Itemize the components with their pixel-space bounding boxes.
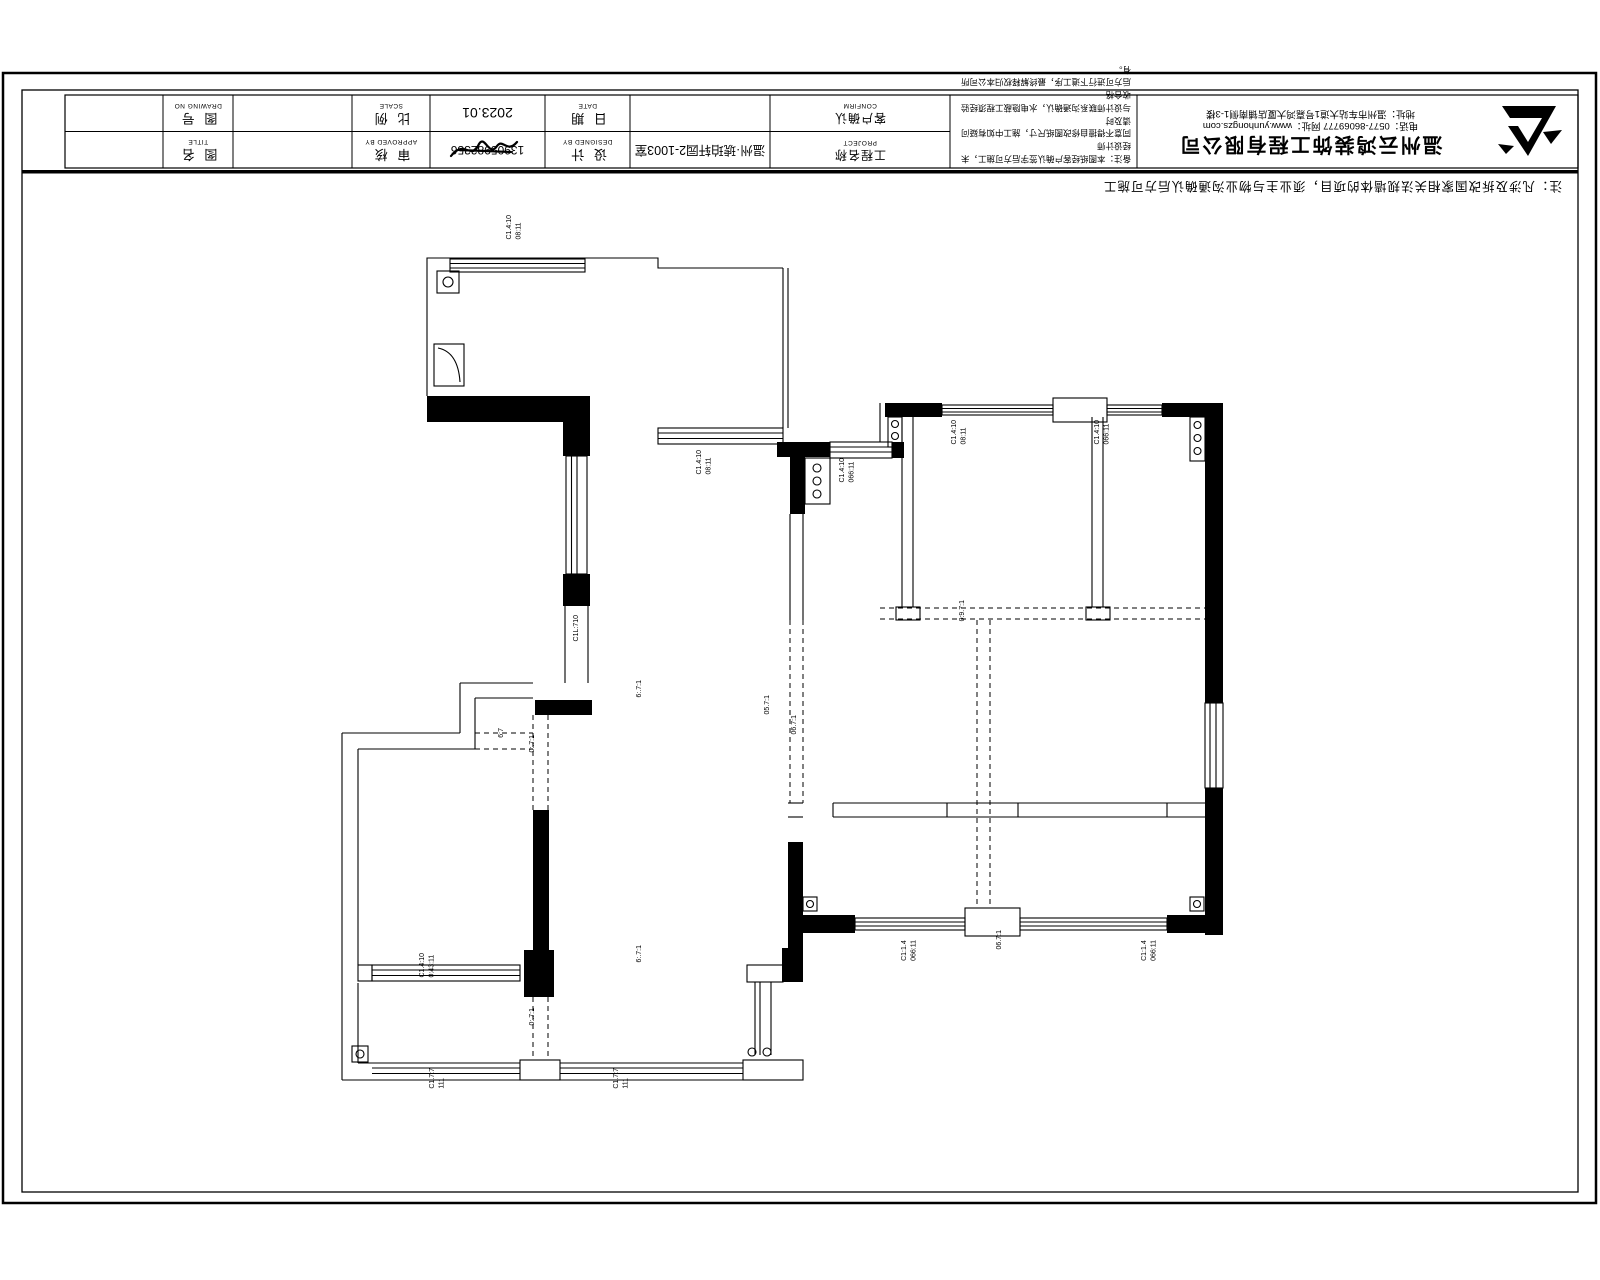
plan-dimension-tag: 06.7:1 (995, 930, 1004, 949)
plan-dimension-tag: C1.7:7 111 (428, 1068, 447, 1089)
scale-zh: 比 例 (372, 110, 411, 125)
date-label: 日 期 DATE (545, 95, 630, 131)
project-label: 工程名称 PROJECT (770, 131, 950, 168)
approved-zh: 审 核 (372, 146, 411, 161)
plan-dimension-tag: C1.4:10 0:43:11 (418, 953, 437, 978)
scale-label: 比 例 SCALE (352, 95, 430, 131)
sheet-frame (3, 73, 1596, 1203)
remarks-line-4: 后方可进行下道工序，最终解释权归本公司所有。 (956, 63, 1131, 89)
plan-dimension-tag: 6:7 (497, 728, 506, 738)
date-value: 2023.01 (462, 105, 513, 121)
drawing-no-label: 图 号 DRAWING NO (163, 95, 233, 131)
drawing-no-zh: 图 号 (179, 110, 218, 125)
company-logo-icon (1486, 103, 1570, 161)
project-value: 温州·琥珀轩园2-1003室 (635, 142, 766, 156)
plan-dimension-tag: 0:.7:1 (528, 735, 537, 753)
plan-dimension-tag: 6:.7:1 (635, 945, 644, 963)
approved-en: APPROVED BY (365, 138, 417, 145)
plan-dimension-tag: C1:1.4 066:11 (1140, 940, 1159, 961)
scale-en: SCALE (379, 101, 403, 108)
plan-dimension-tag: C1.7:7 111 (612, 1068, 631, 1089)
title-label: 图 名 TITLE (163, 131, 233, 168)
plan-walls (427, 396, 1223, 997)
title-en: TITLE (188, 138, 208, 145)
project-value-cell: 温州·琥珀轩园2-1003室 (630, 131, 770, 168)
designed-en: DESIGNED BY (563, 138, 613, 145)
confirm-zh: 客户确认 (834, 110, 886, 124)
drawing-sheet: 图 号 DRAWING NO 图 名 TITLE 比 例 SCALE 审 核 A… (0, 0, 1600, 1280)
project-zh: 工程名称 (834, 147, 886, 161)
plan-dimension-tag: C1.4:10 066:11 (1093, 420, 1112, 445)
approved-label: 审 核 APPROVED BY (352, 131, 430, 168)
confirm-en: CONFIRM (843, 102, 877, 109)
plan-dimension-tag: C1.4:10 08:11 (695, 450, 714, 475)
designed-zh: 设 计 (568, 146, 607, 161)
plan-dimension-tag: 0:9.7:1 (958, 600, 967, 621)
remarks-line-2: 同意不得擅自修改图纸尺寸，施工中如有疑问请及时 (956, 114, 1131, 140)
plan-dimension-tag: 05.7:1 (763, 695, 772, 714)
plan-dimension-tag: 06.7:1 (790, 715, 799, 734)
title-zh: 图 名 (179, 146, 218, 161)
date-value-cell: 2023.01 (430, 95, 545, 131)
sheet-note-line: 注：凡涉及拆改国家相关法规墙体的项目，须业主与物业沟通确认后方可施工 (950, 177, 1562, 197)
plan-dimension-tag: C1.4:10 066:11 (838, 458, 857, 483)
date-en: DATE (578, 101, 597, 108)
plan-dashed-lines (475, 608, 1205, 1060)
remarks-line-3: 与设计师联系沟通确认，水电隐蔽工程须经验收合格 (956, 89, 1131, 115)
remarks-block: 备注：本图纸经客户确认签字后方可施工，未经设计师 同意不得擅自修改图纸尺寸，施工… (950, 95, 1137, 168)
company-contact: 电话：0577-86069777 网址：www.yunhongzs.com (1203, 119, 1418, 131)
plan-dimension-tag: C1:1.4 066:11 (900, 940, 919, 961)
remarks-line-1: 备注：本图纸经客户确认签字后方可施工，未经设计师 (956, 140, 1131, 166)
company-address: 地址：温州市车站大道1号嘉鸿大厦店铺南侧1-3楼 (1206, 107, 1415, 119)
date-zh: 日 期 (568, 110, 607, 125)
drawing-no-en: DRAWING NO (174, 101, 222, 108)
signature-scribble (445, 128, 535, 168)
company-block: 温州云鸿装饰工程有限公司 电话：0577-86069777 网址：www.yun… (1137, 95, 1578, 168)
company-text: 温州云鸿装饰工程有限公司 电话：0577-86069777 网址：www.yun… (1145, 107, 1476, 156)
plan-dimension-tag: C1L:710 (572, 615, 581, 641)
designed-label: 设 计 DESIGNED BY (545, 131, 630, 168)
plan-dimension-tag: 0:.7:1 (528, 1008, 537, 1026)
plan-dimension-tag: 6:.7:1 (635, 680, 644, 698)
plan-dimension-tag: C1.4:10 08:11 (505, 215, 524, 240)
company-name: 温州云鸿装饰工程有限公司 (1179, 131, 1443, 156)
plan-dimension-tag: C1.4:10 08:11 (950, 420, 969, 445)
confirm-label: 客户确认 CONFIRM (770, 95, 950, 131)
project-en: PROJECT (843, 138, 877, 145)
